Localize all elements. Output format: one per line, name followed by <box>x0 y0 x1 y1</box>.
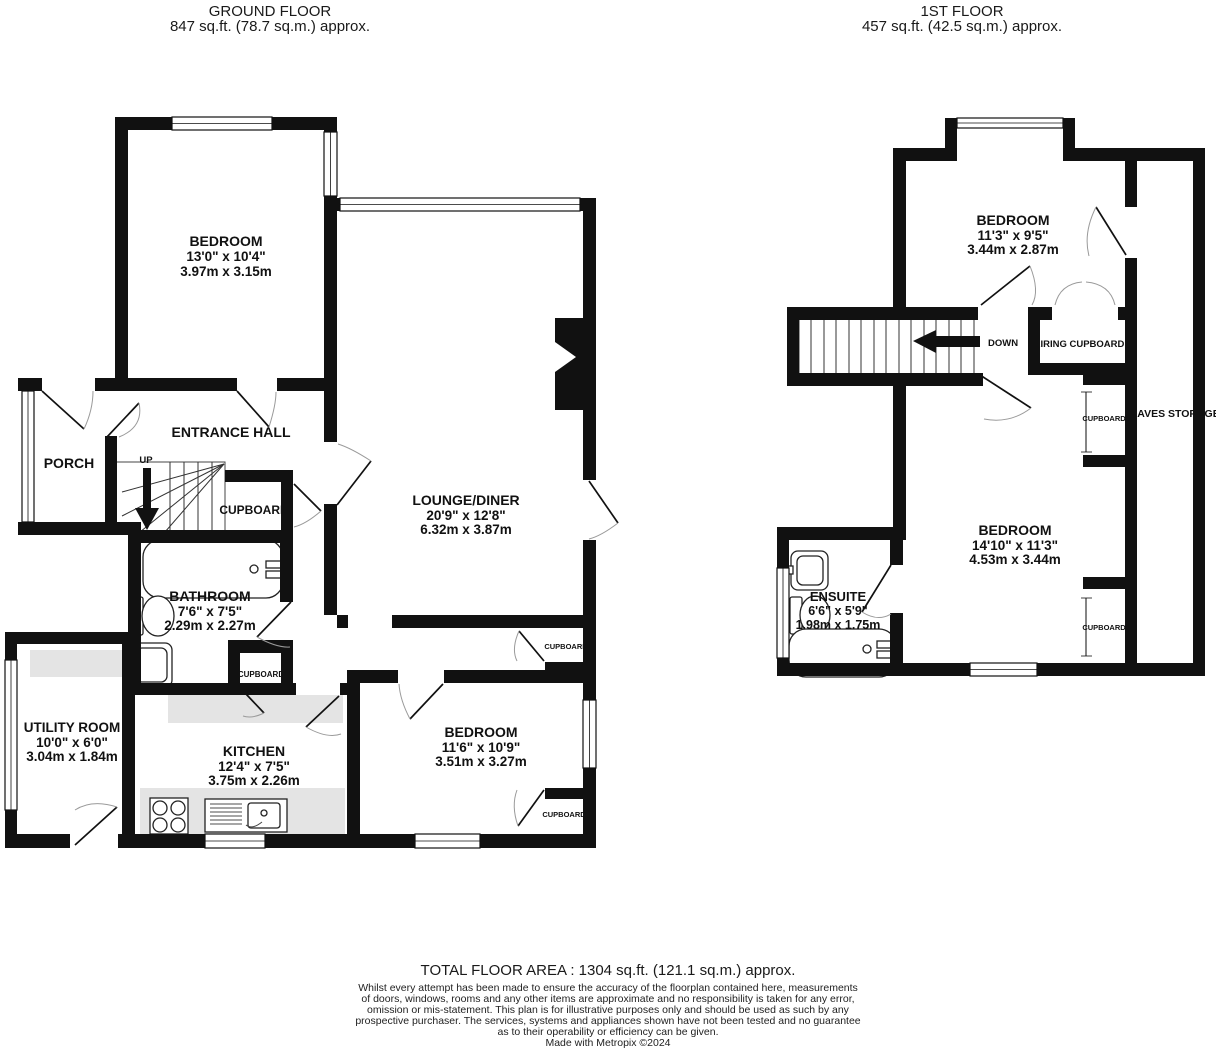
wall <box>893 148 906 320</box>
cupboard-top-label: CUPBOARD <box>1082 414 1126 423</box>
kitchen-sink-drain <box>261 810 267 816</box>
cupboard-bottom-label: CUPBOARD <box>1082 623 1126 632</box>
cupboard-bedroom-label: CUPBOARD <box>542 810 586 819</box>
ensuite-bath-tap <box>877 641 892 648</box>
door-swing-arc <box>1055 282 1082 305</box>
door-leaf <box>862 565 891 612</box>
room-dim-kitchen-metric: 3.75m x 2.26m <box>208 773 300 788</box>
room-dim-bathroom-metric: 2.29m x 2.27m <box>164 618 256 633</box>
door-leaf <box>257 602 291 637</box>
door-swing-arc <box>306 727 341 735</box>
door-leaf <box>589 481 618 523</box>
wall <box>1125 161 1137 207</box>
room-label-kitchen: KITCHEN <box>223 743 285 759</box>
wall <box>777 663 970 676</box>
hob-burner <box>171 818 185 832</box>
door-swing-arc <box>269 392 276 427</box>
wall <box>324 211 337 442</box>
wall <box>583 198 596 480</box>
wall <box>337 615 348 628</box>
stairs-ground <box>115 462 225 532</box>
room-dim-bathroom-imperial: 7'6" x 7'5" <box>178 604 242 619</box>
room-label-bedroom1: BEDROOM <box>189 233 262 249</box>
labels: GROUND FLOOR 847 sq.ft. (78.7 sq.m.) app… <box>24 3 1216 1048</box>
cupboard-hall-label: CUPBOARD <box>544 642 588 651</box>
door-leaf <box>337 461 371 505</box>
door-swing-arc <box>984 408 1031 420</box>
room-dim-bedroom1-metric: 3.97m x 3.15m <box>180 264 272 279</box>
room-dim-lounge-imperial: 20'9" x 12'8" <box>426 508 505 523</box>
door-leaf <box>75 807 117 845</box>
door-leaf <box>981 266 1030 305</box>
wall <box>340 683 360 695</box>
total-floor-area: TOTAL FLOOR AREA : 1304 sq.ft. (121.1 sq… <box>421 962 796 979</box>
wall <box>1028 363 1128 375</box>
wall <box>890 613 903 663</box>
first-floor-area: 457 sq.ft. (42.5 sq.m.) approx. <box>862 18 1062 35</box>
door-swing-arc <box>75 804 117 810</box>
wall <box>265 834 415 848</box>
bath-drain <box>250 565 258 573</box>
hob-burner <box>153 818 167 832</box>
room-dim-lounge-metric: 6.32m x 3.87m <box>420 522 512 537</box>
wall <box>95 378 237 391</box>
door-swing-arc <box>1030 266 1036 305</box>
room-label-ensuite: ENSUITE <box>810 589 867 604</box>
room-label-lounge: LOUNGE/DINER <box>412 492 519 508</box>
wall <box>281 470 293 532</box>
room-dim-bedroom2-imperial: 11'6" x 10'9" <box>442 740 521 755</box>
wall <box>480 834 596 848</box>
door-leaf <box>42 391 84 429</box>
wall <box>128 683 296 695</box>
wall <box>18 378 42 391</box>
cupboard-understairs-label: CUPBOARD <box>219 503 289 517</box>
wall <box>347 670 360 848</box>
wall <box>1063 148 1205 161</box>
door-swing-arc <box>399 684 410 719</box>
cupboard-bathroom-label: CUPBOARD <box>238 670 284 679</box>
door-swing-arc <box>294 511 321 527</box>
wall <box>1083 577 1125 589</box>
bath-tap <box>266 571 281 578</box>
ensuite-bath-drain <box>863 645 871 653</box>
wall <box>5 834 70 848</box>
room-dim-bedroom3-metric: 3.44m x 2.87m <box>967 242 1059 257</box>
stairs-up-label: UP <box>139 455 153 466</box>
room-label-bedroom2: BEDROOM <box>444 724 517 740</box>
room-dim-ensuite-imperial: 6'6" x 5'9" <box>808 604 868 618</box>
wall <box>777 527 902 540</box>
ensuite-bath-tap <box>877 651 892 658</box>
airing-cupboard-label: AIRING CUPBOARD <box>1034 339 1125 350</box>
wall <box>118 834 205 848</box>
door-leaf <box>237 391 269 427</box>
room-dim-utility-imperial: 10'0" x 6'0" <box>36 735 108 750</box>
wall <box>444 670 596 683</box>
door-leaf <box>1096 207 1126 255</box>
door-leaf <box>519 631 544 661</box>
room-label-porch: PORCH <box>44 455 95 471</box>
door-swing-arc <box>1087 207 1096 256</box>
wall <box>1083 455 1125 467</box>
wall <box>1193 148 1205 676</box>
door-leaf <box>518 790 544 826</box>
door-swing-arc <box>514 790 518 826</box>
door-swing-arc <box>1086 282 1115 305</box>
stair-tread <box>122 464 224 492</box>
room-dim-kitchen-imperial: 12'4" x 7'5" <box>218 759 290 774</box>
room-dim-bedroom4-metric: 4.53m x 3.44m <box>969 552 1061 567</box>
room-dim-bedroom2-metric: 3.51m x 3.27m <box>435 754 527 769</box>
counter <box>168 695 343 723</box>
wall <box>787 307 978 320</box>
room-label-bedroom4: BEDROOM <box>978 522 1051 538</box>
wall <box>115 117 128 391</box>
credit-line: Made with Metropix ©2024 <box>545 1037 670 1048</box>
stair-tread <box>165 464 224 532</box>
door-swing-arc <box>338 444 371 461</box>
stairs-down-label: DOWN <box>988 338 1018 349</box>
stair-tread <box>140 464 224 532</box>
wall <box>392 615 596 628</box>
room-dim-bedroom3-imperial: 11'3" x 9'5" <box>977 228 1048 243</box>
room-label-utility: UTILITY ROOM <box>24 720 121 735</box>
wall <box>280 530 293 602</box>
hob-burner <box>171 801 185 815</box>
room-dim-bedroom4-imperial: 14'10" x 11'3" <box>972 538 1058 553</box>
wall <box>128 530 293 543</box>
wall <box>787 373 983 386</box>
wall <box>1083 375 1125 385</box>
room-dim-ensuite-metric: 1.98m x 1.75m <box>796 618 881 632</box>
room-label-bathroom: BATHROOM <box>169 588 250 604</box>
door-leaf <box>410 684 443 719</box>
room-dim-bedroom1-imperial: 13'0" x 10'4" <box>186 249 265 264</box>
floorplan-svg: GROUND FLOOR 847 sq.ft. (78.7 sq.m.) app… <box>0 0 1216 1048</box>
door-swing-arc <box>589 523 618 539</box>
wall <box>360 670 398 683</box>
counter <box>30 650 125 677</box>
door-leaf <box>294 484 321 511</box>
room-label-bedroom3: BEDROOM <box>976 212 1049 228</box>
wall <box>1037 663 1205 676</box>
ground-floor-area: 847 sq.ft. (78.7 sq.m.) approx. <box>170 18 370 35</box>
wall <box>105 436 117 535</box>
floorplan-page: GROUND FLOOR 847 sq.ft. (78.7 sq.m.) app… <box>0 0 1216 1048</box>
ensuite-basin-inner <box>797 556 823 585</box>
wall <box>122 632 135 848</box>
wall <box>890 540 903 565</box>
bath-tap <box>266 561 281 568</box>
down-arrow-shaft <box>936 336 980 347</box>
wall <box>18 522 128 535</box>
wall <box>5 632 135 644</box>
wall <box>545 788 583 799</box>
wall <box>893 373 906 540</box>
wall <box>1125 258 1137 665</box>
door-leaf <box>980 375 1031 408</box>
wall <box>324 504 337 615</box>
door-swing-arc <box>84 391 93 429</box>
door-leaf <box>107 403 139 437</box>
door-swing-arc <box>514 631 519 661</box>
room-dim-utility-metric: 3.04m x 1.84m <box>26 749 118 764</box>
hob-burner <box>153 801 167 815</box>
room-label-entrance-hall: ENTRANCE HALL <box>172 424 291 440</box>
